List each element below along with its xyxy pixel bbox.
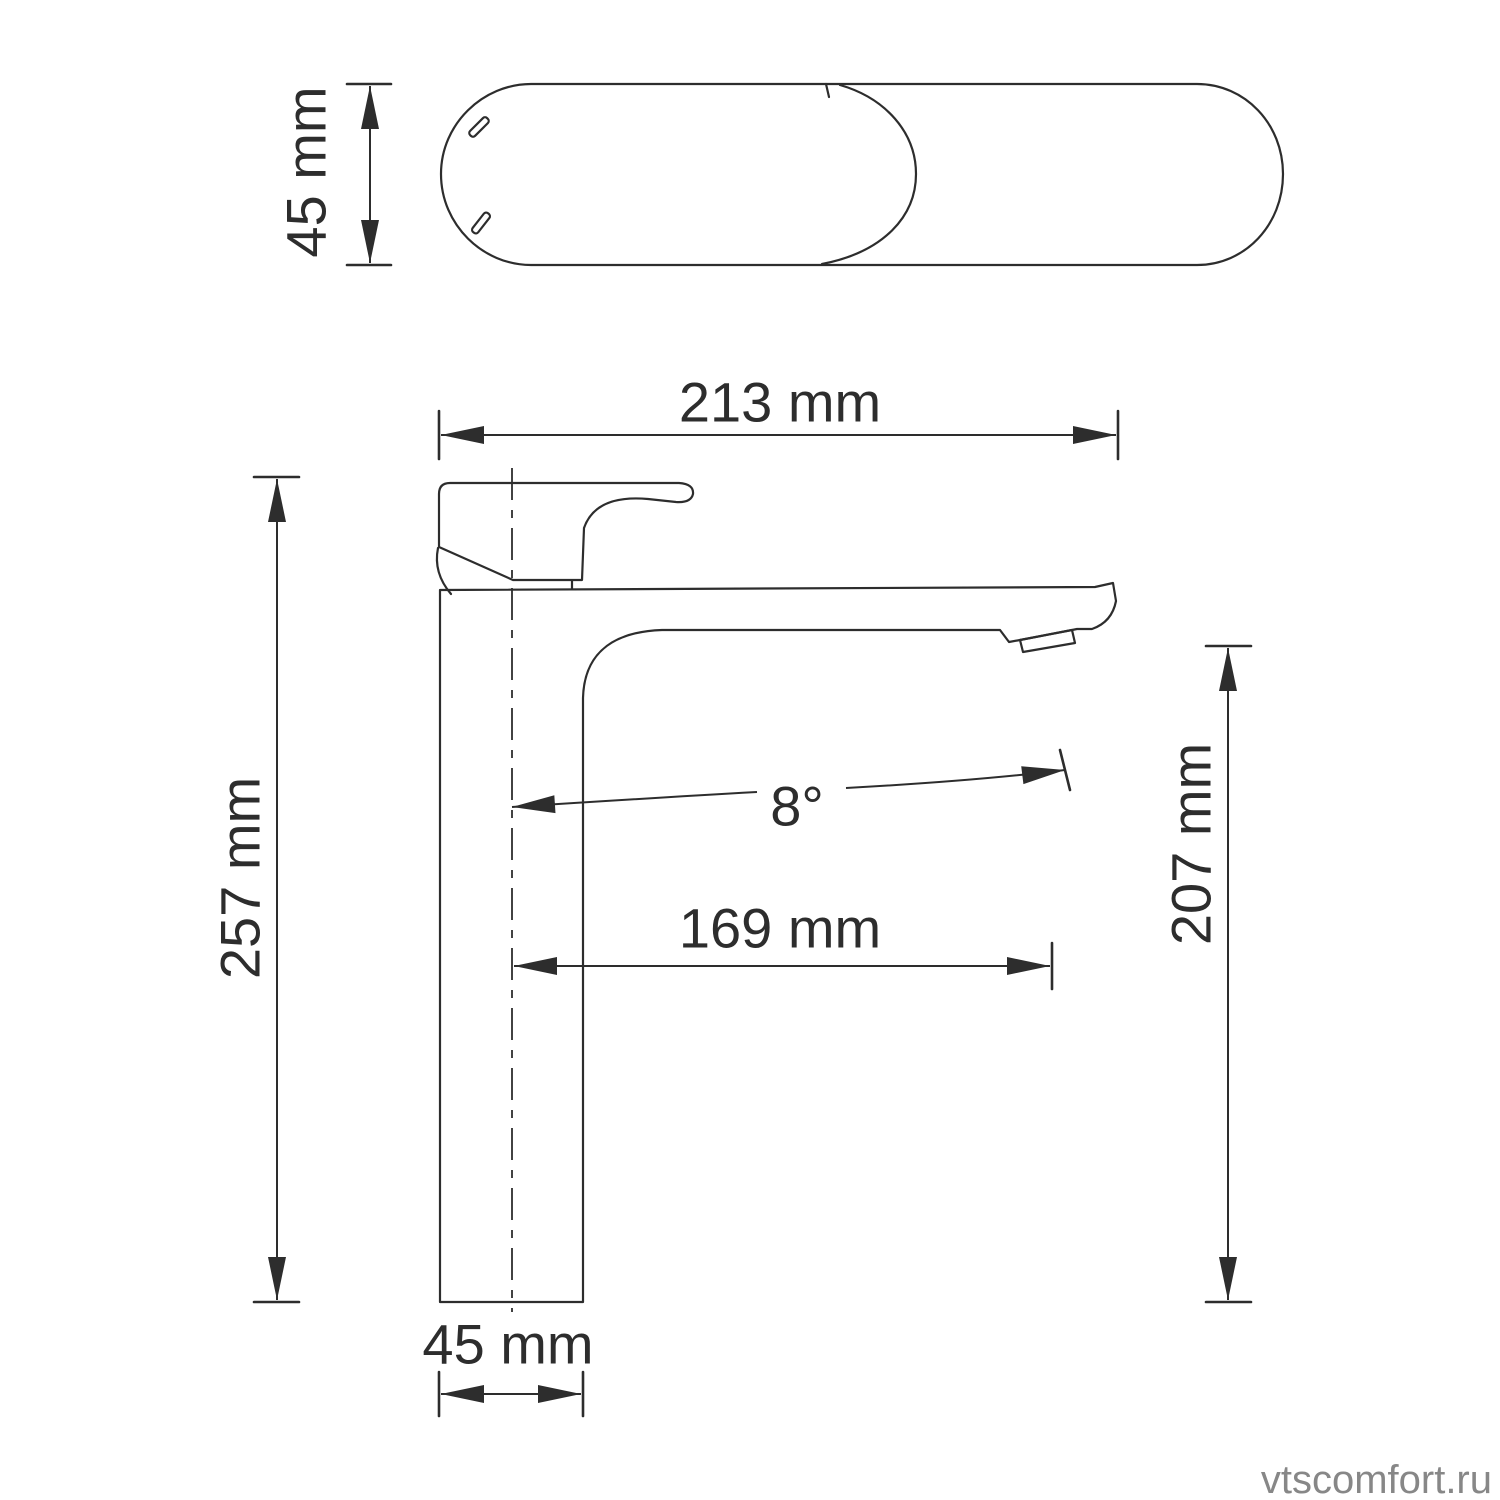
top-view-indicator-slot [468, 116, 490, 138]
dimension-base-width: 45 mm [422, 1313, 593, 1416]
dim-label-spout-reach: 169 mm [679, 897, 881, 960]
dimension-overall-length: 213 mm [439, 371, 1118, 459]
dim-label-spout-angle: 8° [770, 775, 824, 838]
dimensions: 45 mm 213 mm 257 mm 8° 169 mm [209, 84, 1251, 1416]
aerator [1020, 630, 1075, 652]
handle-outline [439, 483, 693, 580]
side-view [437, 468, 1116, 1312]
angle-arc-right [846, 770, 1065, 788]
handle-base-arc [437, 548, 451, 594]
dim-label-top-view-width: 45 mm [275, 86, 338, 257]
watermark-text: vtscomfort.ru [1261, 1458, 1492, 1500]
top-view-handle-split-curve [822, 85, 916, 264]
technical-drawing-canvas: 45 mm 213 mm 257 mm 8° 169 mm [0, 0, 1500, 1500]
top-view [441, 84, 1283, 265]
dimension-overall-height: 257 mm [209, 477, 299, 1302]
top-view-notch [826, 84, 829, 97]
dim-label-base-width: 45 mm [422, 1313, 593, 1376]
top-view-indicator-slot [471, 211, 491, 234]
angle-arc-left [512, 792, 757, 807]
dimension-top-view-width: 45 mm [275, 84, 391, 265]
dimension-spout-height: 207 mm [1160, 646, 1251, 1302]
dimension-spout-angle: 8° [512, 750, 1070, 838]
dim-label-overall-length: 213 mm [679, 371, 881, 434]
dimension-spout-reach: 169 mm [514, 897, 1052, 989]
top-view-outline [441, 84, 1283, 265]
dim-label-overall-height: 257 mm [209, 777, 272, 979]
dim-label-spout-height: 207 mm [1160, 743, 1223, 945]
